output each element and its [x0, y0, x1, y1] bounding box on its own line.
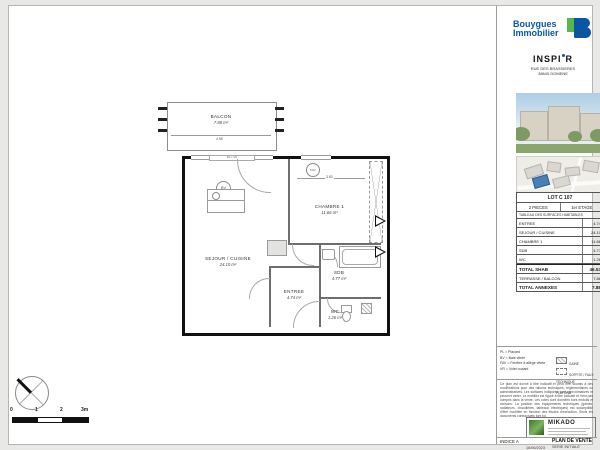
project-name-left: INSPI	[533, 54, 562, 64]
sejour-label: SEJOUR / CUISINE	[192, 256, 264, 261]
total-annexes-value: 7.88	[582, 283, 600, 291]
project-address: RUE DES BRASSIERES 38640 DOMENE	[509, 66, 597, 76]
balcony-dim-value: 4.98	[215, 137, 224, 141]
entree-label: ENTREE	[271, 289, 317, 294]
table-title: TABLEAU DES SURFACES HABITABLES	[517, 212, 585, 218]
annex-label: TERRASSE / BALCON	[517, 274, 582, 282]
total-shab-label: TOTAL SHAB	[517, 265, 582, 273]
lot-floor: 1er ETAGE	[560, 203, 600, 211]
row-value: 4.74	[582, 219, 600, 227]
legend-list: PL = Placard BV = Baie vitrée FAV = Fenê…	[500, 350, 558, 372]
row-value: 4.77	[582, 246, 600, 254]
mikado-logo-icon	[529, 420, 544, 435]
brand-block: Bouygues Immobilier	[509, 14, 597, 56]
legend-item: VR = Volet roulant	[500, 367, 558, 373]
kitchen-appliance	[267, 240, 287, 256]
total-shab-value: 46.53	[582, 265, 600, 273]
site-plan-map	[516, 156, 600, 193]
sdb-label: SDB	[322, 270, 356, 275]
fav-marker: FAV	[306, 163, 320, 177]
lot-rooms: 2 PIECES	[517, 203, 560, 211]
lot-table: LOT C 107 2 PIECES 1er ETAGE TABLEAU DES…	[516, 192, 600, 292]
row-label: CHAMBRE 1	[517, 237, 582, 245]
entree-area: 4.74 m²	[271, 295, 317, 300]
placard	[369, 161, 383, 243]
lot-subtitle-row: 2 PIECES 1er ETAGE	[516, 203, 600, 212]
architect-stamp: MIKADO	[526, 417, 596, 438]
balcony-outline	[167, 102, 277, 151]
disclaimer-notes: Ce plan est donné à titre indicatif et p…	[500, 382, 593, 418]
table-row: ENTREE 4.74	[516, 219, 600, 228]
drawing-sheet: Bouygues Immobilier INSPIR RUE DES BRASS…	[8, 5, 593, 445]
chambre-label: CHAMBRE 1	[292, 204, 367, 209]
row-label: WC	[517, 255, 582, 263]
row-label: SDB	[517, 246, 582, 254]
chambre-dim-value: 3.83	[325, 175, 334, 179]
table-row: CHAMBRE 1 11.66	[516, 237, 600, 246]
revision-index: INDICE A	[500, 439, 519, 444]
project-name-right: R	[566, 54, 574, 64]
drawing-subtitle: SERIE INITIALE	[552, 445, 580, 449]
soffite-swatch-icon	[556, 368, 567, 375]
building-render-photo	[516, 93, 600, 153]
annex-value: 7.88	[582, 274, 600, 282]
brand-line2: Immobilier	[513, 29, 559, 38]
row-value: 11.66	[582, 237, 600, 245]
address-line2: 38640 DOMENE	[509, 71, 597, 76]
wc-label: WC	[322, 309, 348, 314]
chambre-area: 11.66 m²	[292, 210, 367, 215]
total-shab-row: TOTAL SHAB 46.53	[516, 264, 600, 274]
wall-sejour-chambre	[288, 159, 290, 244]
washbasin	[322, 249, 335, 260]
total-annexes-label: TOTAL ANNEXES	[517, 283, 582, 291]
scale-tick-1: 1	[35, 407, 38, 413]
table-row: SEJOUR / CUISINE 24.10	[516, 228, 600, 237]
row-value: 24.10	[582, 228, 600, 236]
drawing-date: 16/06/2023	[526, 446, 545, 450]
project-logo: INSPIR	[509, 54, 597, 64]
drawing-title: PLAN DE VENTE	[552, 438, 592, 444]
table-row: WC 1.26	[516, 255, 600, 264]
technical-duct	[361, 303, 372, 314]
kitchen-counter	[207, 189, 245, 213]
sdb-area: 4.77 m²	[322, 276, 356, 281]
table-title-row: TABLEAU DES SURFACES HABITABLES	[516, 212, 600, 219]
window-arrow-inner	[376, 248, 384, 256]
table-row: SDB 4.77	[516, 246, 600, 255]
architect-name: MIKADO	[548, 420, 575, 426]
row-label: SEJOUR / CUISINE	[517, 228, 582, 236]
window-arrow-inner	[376, 217, 384, 225]
wc-area: 1.26 m²	[322, 315, 348, 320]
chambre-window-opening	[301, 154, 331, 161]
row-label: ENTREE	[517, 219, 582, 227]
balcony-dim-line	[171, 135, 271, 136]
scale-tick-3: 3m	[81, 407, 88, 413]
lot-title-row: LOT C 107	[516, 192, 600, 203]
brand-name: Bouygues Immobilier	[513, 20, 559, 38]
bouygues-logo-icon	[567, 18, 591, 38]
balcony-area: 7.88 m²	[167, 120, 275, 125]
scale-tick-2: 2	[60, 407, 63, 413]
annex-row: TERRASSE / BALCON 7.88	[516, 274, 600, 283]
lot-title: LOT C 107	[548, 195, 573, 201]
plan-sheet-page: { "header": { "brand_line1": "Bouygues",…	[0, 0, 600, 450]
scale-tick-0: 0	[10, 407, 13, 413]
balcony-label: BALCON	[167, 114, 275, 119]
total-annexes-row: TOTAL ANNEXES 7.88	[516, 283, 600, 292]
wall-entree-top	[269, 266, 320, 268]
sejour-area: 24.10 m²	[192, 262, 264, 267]
notes-block: PL = Placard BV = Baie vitrée FAV = Fenê…	[496, 346, 597, 445]
row-value: 1.26	[582, 255, 600, 263]
